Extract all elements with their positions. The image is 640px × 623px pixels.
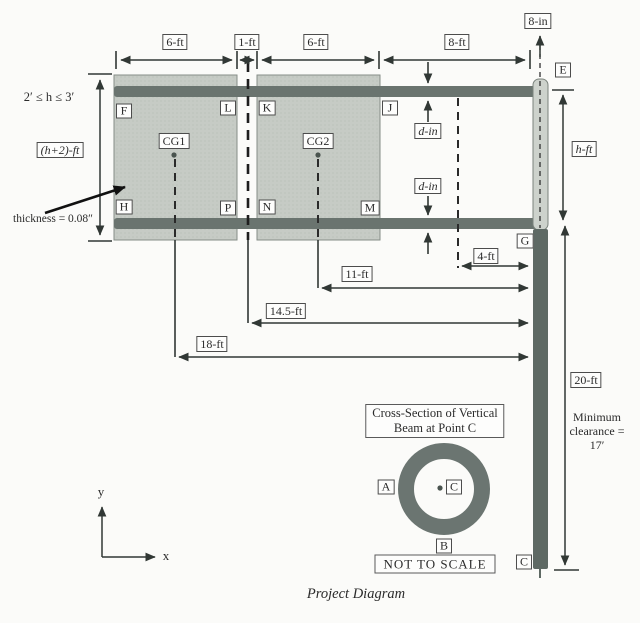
dim-11ft-label: 11-ft (342, 266, 373, 282)
dim-panel2-width-label: 6-ft (303, 34, 328, 50)
point-F-label: F (116, 104, 132, 119)
point-G-label: G (517, 234, 534, 249)
not-to-scale-box: NOT TO SCALE (374, 555, 495, 574)
dim-sign-height-label: (h+2)-ft (37, 142, 84, 158)
dim-panel1-width-label: 6-ft (162, 34, 187, 50)
cross-section-A-label: A (378, 480, 395, 495)
cg1-dot (171, 152, 176, 157)
cg2-dot (315, 152, 320, 157)
point-N-label: N (259, 200, 276, 215)
dim-14-5ft-label: 14.5-ft (266, 303, 306, 319)
point-L-label: L (220, 101, 236, 116)
project-diagram: 6-ft 1-ft 6-ft 8-ft 8-in (h+2)-ft d-in d… (0, 0, 640, 623)
point-H-label: H (116, 200, 133, 215)
diagram-drawing (0, 0, 640, 623)
dim-overhang-label: 8-ft (444, 34, 469, 50)
point-P-label: P (220, 201, 236, 216)
y-axis-label: y (98, 485, 105, 499)
point-E-label: E (555, 63, 571, 78)
cg1-label: CG1 (159, 133, 190, 149)
point-K-label: K (259, 101, 276, 116)
cross-section-title-line2: Beam at Point C (372, 421, 497, 436)
cross-section-B-label: B (436, 539, 452, 554)
cross-section-title: Cross-Section of Vertical Beam at Point … (365, 404, 504, 438)
thickness-note: thickness = 0.08″ (13, 212, 93, 226)
top-beam (114, 86, 547, 97)
point-J-label: J (382, 101, 398, 116)
point-C-base-label: C (516, 555, 532, 570)
cross-section-C-label: C (446, 480, 462, 495)
diagram-caption: Project Diagram (307, 587, 405, 601)
dim-upper-beam-dia-label: d-in (414, 123, 441, 139)
thickness-leader-arrow (45, 187, 125, 213)
post-lower-section (533, 229, 548, 569)
h-range-note: 2′ ≤ h ≤ 3′ (24, 90, 74, 104)
cg2-label: CG2 (303, 133, 334, 149)
cross-section-title-line1: Cross-Section of Vertical (372, 406, 497, 421)
dim-gap-label: 1-ft (234, 34, 259, 50)
dim-clear-height-label: h-ft (572, 141, 597, 157)
dim-lower-beam-dia-label: d-in (414, 178, 441, 194)
dim-post-offset-label: 8-in (524, 13, 551, 29)
cross-section-ring (406, 451, 482, 527)
dim-4ft-label: 4-ft (473, 248, 498, 264)
min-clearance-note: Minimum clearance = 17′ (564, 410, 630, 452)
cross-section-center-dot (437, 485, 442, 490)
bottom-beam (114, 218, 547, 229)
x-axis-label: x (163, 549, 170, 563)
dim-18ft-label: 18-ft (196, 336, 227, 352)
point-M-label: M (361, 201, 380, 216)
dim-post-height-label: 20-ft (570, 372, 601, 388)
